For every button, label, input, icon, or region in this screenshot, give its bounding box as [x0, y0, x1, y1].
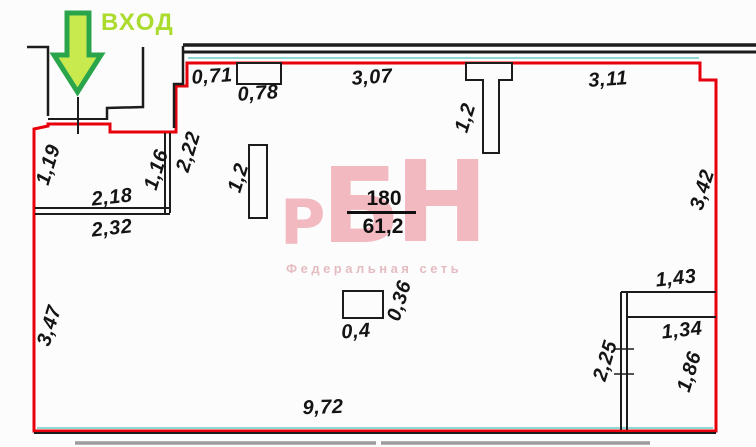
entrance-label: ВХОД [101, 9, 174, 37]
dim-bottom-width-label: 9,72 [302, 396, 344, 420]
dim-vestibule-inner-width-label: 2,18 [90, 184, 133, 211]
room-area-label: 61,2 [363, 215, 404, 239]
dim-top-span-left-label: 3,07 [351, 65, 393, 91]
dim-vestibule-outer-width-label: 2,32 [90, 215, 133, 242]
room-fraction-bar [347, 211, 416, 214]
red-outline [34, 63, 716, 431]
dim-top-niche-width-label: 0,78 [237, 81, 279, 107]
dim-pillar-width-label: 0,4 [341, 320, 372, 345]
partition-stub [249, 145, 267, 218]
pillar [343, 291, 383, 318]
floor-plan-canvas: Р Б Н Федеральная сеть [0, 0, 756, 447]
vestibule-left-wall [27, 47, 48, 116]
room-number-label: 180 [366, 187, 401, 211]
dim-top-span-right-label: 3,11 [588, 67, 629, 93]
dim-closet-outer-width-label: 1,43 [654, 265, 697, 292]
black-walls [27, 45, 756, 433]
entrance-arrow-icon [54, 13, 101, 92]
vestibule-right-wall [107, 47, 143, 120]
dim-closet-inner-width-label: 1,34 [660, 317, 703, 344]
dim-top-offset-label: 0,71 [191, 64, 233, 90]
